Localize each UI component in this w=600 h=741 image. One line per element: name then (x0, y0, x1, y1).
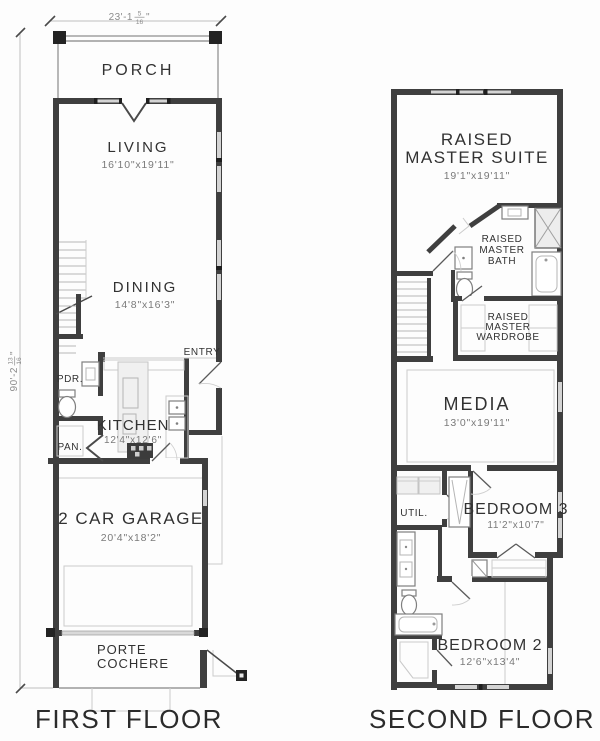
suite-label-1: RAISED (441, 130, 513, 149)
window (96, 100, 120, 103)
floor-plan-drawing: 23'-1 5 16 " 90'-2 13 16 " (0, 0, 600, 741)
pantry-door (87, 435, 103, 461)
front-door (122, 103, 146, 121)
bath-label-3: BATH (488, 256, 516, 267)
porch-column (53, 31, 66, 44)
bedroom3-size: 11'2"x10'7" (487, 520, 544, 531)
bedroom2-door (452, 582, 470, 599)
first-floor-title: FIRST FLOOR (35, 704, 223, 734)
bath-chamfer-wall (470, 206, 499, 226)
width-dim-main: 23'-1 (109, 12, 133, 23)
bath-vanity (502, 206, 528, 219)
porte-label-1: PORTE (97, 642, 147, 657)
powder-label: PDR. (57, 374, 83, 385)
window (487, 685, 509, 689)
height-dim-den: 16 (16, 357, 23, 365)
garage-right-wall (202, 458, 208, 636)
dining-size: 14'8"x16'3" (115, 299, 176, 311)
garage-apron (64, 566, 192, 626)
stair-rail-wall (427, 278, 431, 358)
width-dim-num: 5 (138, 11, 142, 18)
window (203, 490, 207, 506)
sf-stairs (391, 251, 461, 358)
garage-size: 20'4"x18'2" (101, 532, 162, 544)
second-floor-plan: RAISED MASTER SUITE 19'1"x19'11" RAISED … (369, 89, 595, 734)
window (548, 648, 552, 674)
window (558, 382, 562, 412)
kitchen-label: KITCHEN (97, 417, 170, 434)
dryer (419, 477, 440, 494)
width-dim-den: 16 (136, 19, 144, 26)
window (459, 91, 483, 94)
sf-utility (397, 477, 470, 527)
stair-treads (397, 282, 427, 352)
porch-column (209, 31, 222, 44)
bedroom2-size: 12'6"x13'4" (460, 656, 521, 668)
media-size: 13'0"x19'11" (444, 417, 510, 429)
porte-column (200, 650, 207, 688)
powder-vanity (82, 362, 99, 386)
porch-label: PORCH (102, 62, 175, 79)
wardrobe-label-3: WARDROBE (476, 332, 539, 343)
sf-left-wall (391, 89, 397, 690)
suite-label-2: MASTER SUITE (405, 148, 549, 167)
bedroom2-label: BEDROOM 2 (437, 637, 542, 654)
height-dim-main: 90'-2 (9, 367, 20, 391)
suite-size: 19'1"x19'11" (444, 170, 510, 182)
media-label: MEDIA (443, 394, 510, 414)
ff-powder-room (53, 352, 105, 421)
window (487, 91, 511, 94)
bath-label-2: MASTER (479, 245, 524, 256)
garage-label: 2 CAR GARAGE (58, 509, 204, 528)
media-top-wall (453, 355, 563, 361)
width-dimension-label: 23'-1 5 16 " (109, 11, 151, 27)
front-door-opening (122, 98, 146, 104)
bedroom3-label: BEDROOM 3 (463, 501, 568, 518)
window (217, 132, 221, 158)
stair-break-line (56, 296, 92, 314)
window (431, 91, 456, 94)
kitchen-size: 12'4"x12'6" (104, 435, 162, 446)
living-label: LIVING (107, 139, 168, 156)
stair-treads (59, 242, 86, 298)
bath-chamfer-wall (428, 226, 455, 252)
washer (397, 477, 418, 494)
left-wall (53, 98, 59, 688)
second-floor-title: SECOND FLOOR (369, 704, 595, 734)
shower-pan (400, 642, 428, 678)
garage-door (62, 631, 194, 635)
porte-brace (207, 650, 239, 675)
sf-hall-bath (395, 532, 442, 635)
toilet (59, 397, 76, 418)
height-dim-unit: " (9, 351, 20, 355)
sf-media (407, 370, 554, 462)
window (558, 518, 562, 538)
first-floor-plan: PORCH LIVING 16'10"x19'11" DINING 14'8"x… (35, 31, 247, 734)
entry-label: ENTRY (184, 347, 221, 358)
suite-door (433, 251, 453, 271)
width-dim-unit: " (146, 12, 150, 23)
porte-label-2: COCHERE (97, 656, 169, 671)
ff-kitchen (103, 358, 216, 464)
media-platform (407, 370, 554, 462)
toilet (402, 595, 417, 615)
window (217, 166, 221, 192)
window (455, 685, 477, 689)
window (217, 240, 221, 266)
height-dim-num: 13 (8, 357, 15, 365)
window (217, 274, 221, 300)
bath-label-1: RAISED (482, 234, 523, 245)
dining-label: DINING (113, 279, 178, 296)
pantry-label: PAN. (58, 442, 83, 453)
floor-plan-sheet: 23'-1 5 16 " 90'-2 13 16 " (0, 0, 600, 741)
bedroom3-door (473, 471, 491, 488)
height-dimension-label: 90'-2 13 16 " (8, 351, 24, 392)
utility-label: UTIL. (400, 508, 427, 519)
window (148, 100, 168, 103)
overhang-outline (208, 436, 222, 564)
living-size: 16'10"x19'11" (101, 159, 174, 171)
